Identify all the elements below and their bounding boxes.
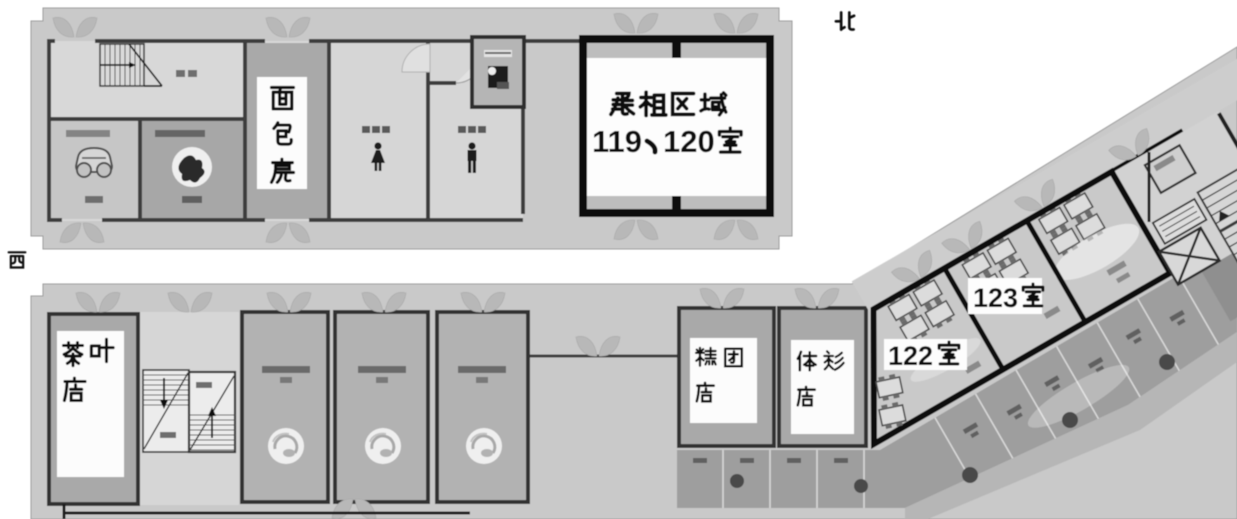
svg-text:120: 120	[663, 124, 715, 159]
svg-text:119: 119	[592, 124, 642, 159]
svg-text:123: 123	[973, 283, 1018, 313]
svg-text:122: 122	[888, 341, 933, 371]
